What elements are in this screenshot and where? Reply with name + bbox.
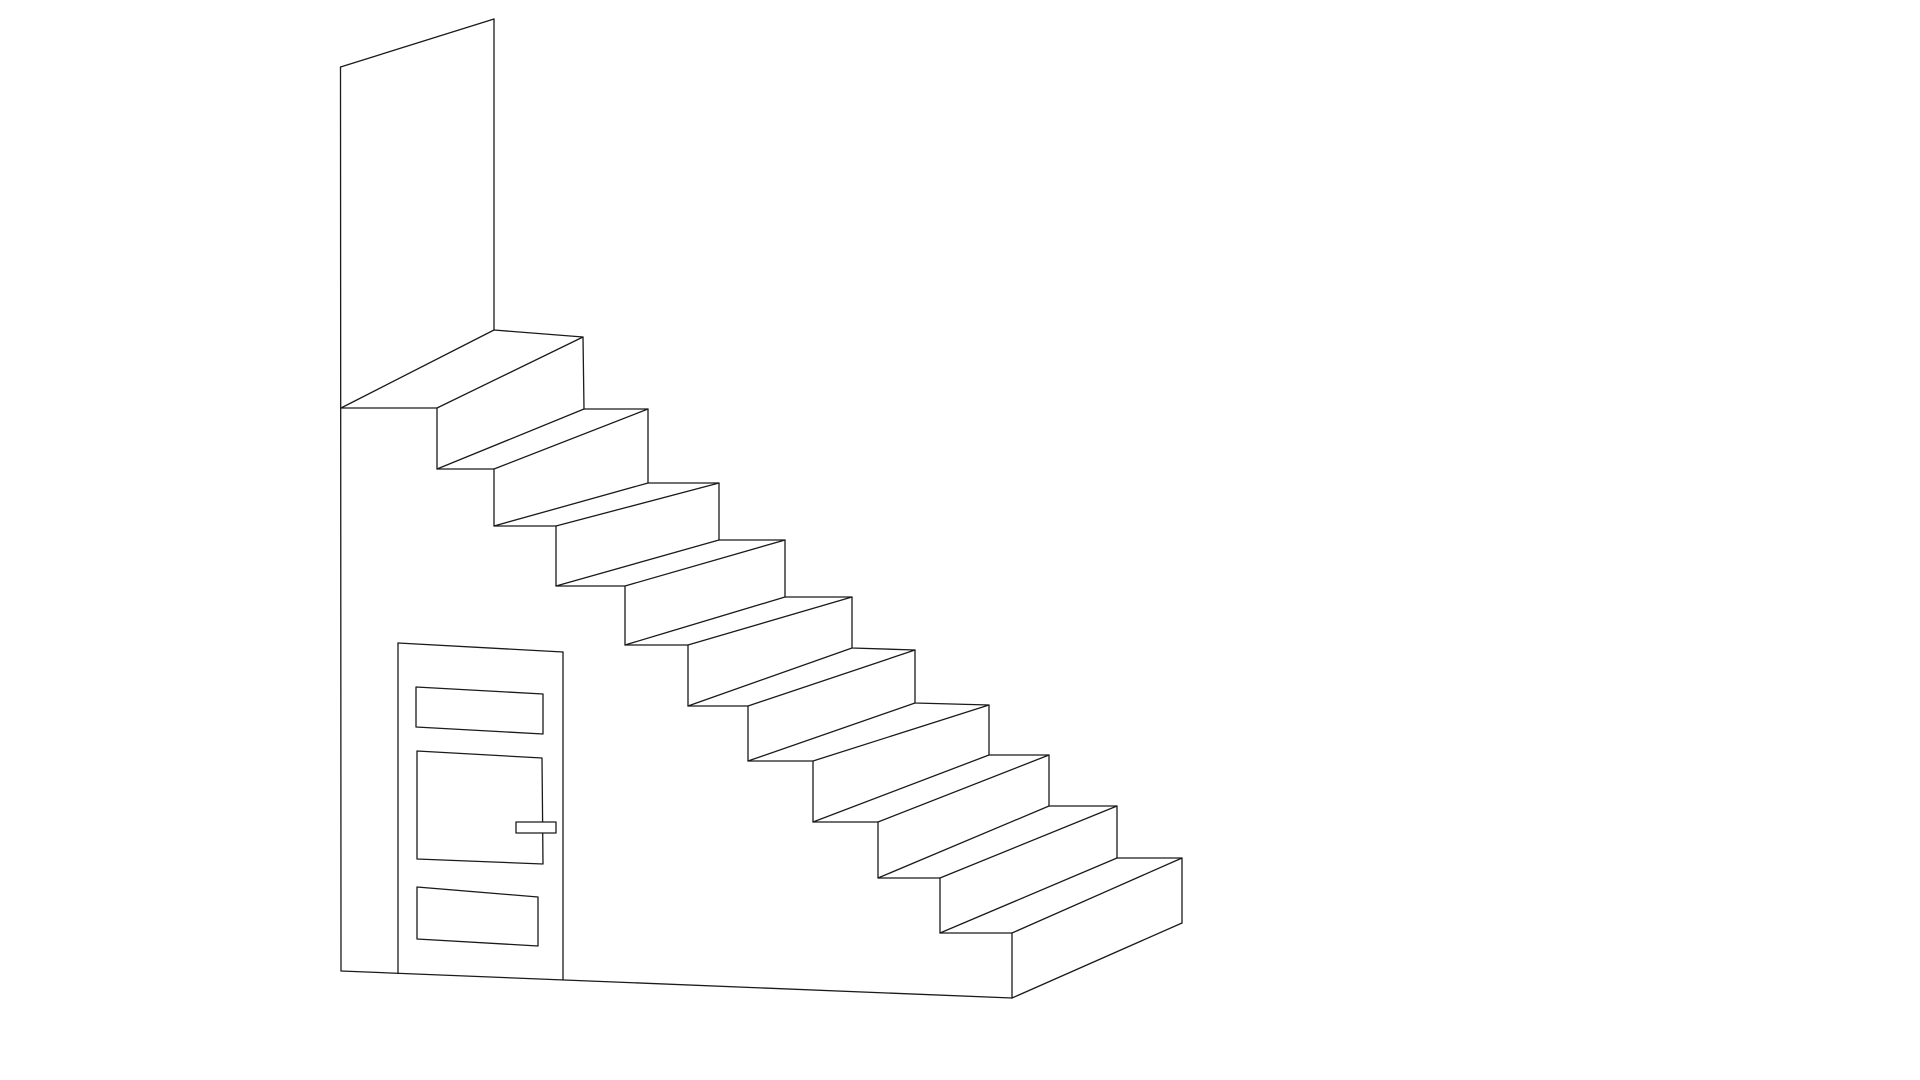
step-depth-edge-12 [748,650,915,706]
step-depth-edge-11 [688,648,852,706]
step-depth-edge-7 [556,540,719,586]
step-depth-edge-1 [341,330,494,408]
staircase-scene [0,0,1920,1080]
step-depth-edge-3 [437,409,584,469]
far-step-silhouette [494,330,1182,923]
step-depth-edge-5 [494,483,648,526]
floor-edge [341,971,1012,998]
step-depth-edge-13 [748,703,915,761]
door-panel-top [416,687,543,734]
door-panel-bottom [417,887,538,946]
door-handle [516,822,556,833]
step-depth-edge-9 [625,597,785,645]
step-depth-edge-8 [625,540,785,586]
wall-top-edge [341,19,495,67]
door-top-edge [398,643,563,652]
step-depth-edge-18 [940,806,1117,878]
step-depth-edge-21 [1012,923,1182,998]
step-depth-edge-10 [688,597,852,645]
step-depth-edge-20 [1012,858,1182,933]
door-panel-middle [417,751,543,864]
step-depth-edge-19 [940,858,1117,933]
step-depth-edge-17 [878,806,1049,878]
step-depth-edge-14 [813,705,989,761]
wall-left-edge [341,67,342,971]
staircase-line-drawing [0,0,1920,1080]
step-depth-edge-6 [556,483,719,526]
step-depth-edge-4 [494,409,648,469]
